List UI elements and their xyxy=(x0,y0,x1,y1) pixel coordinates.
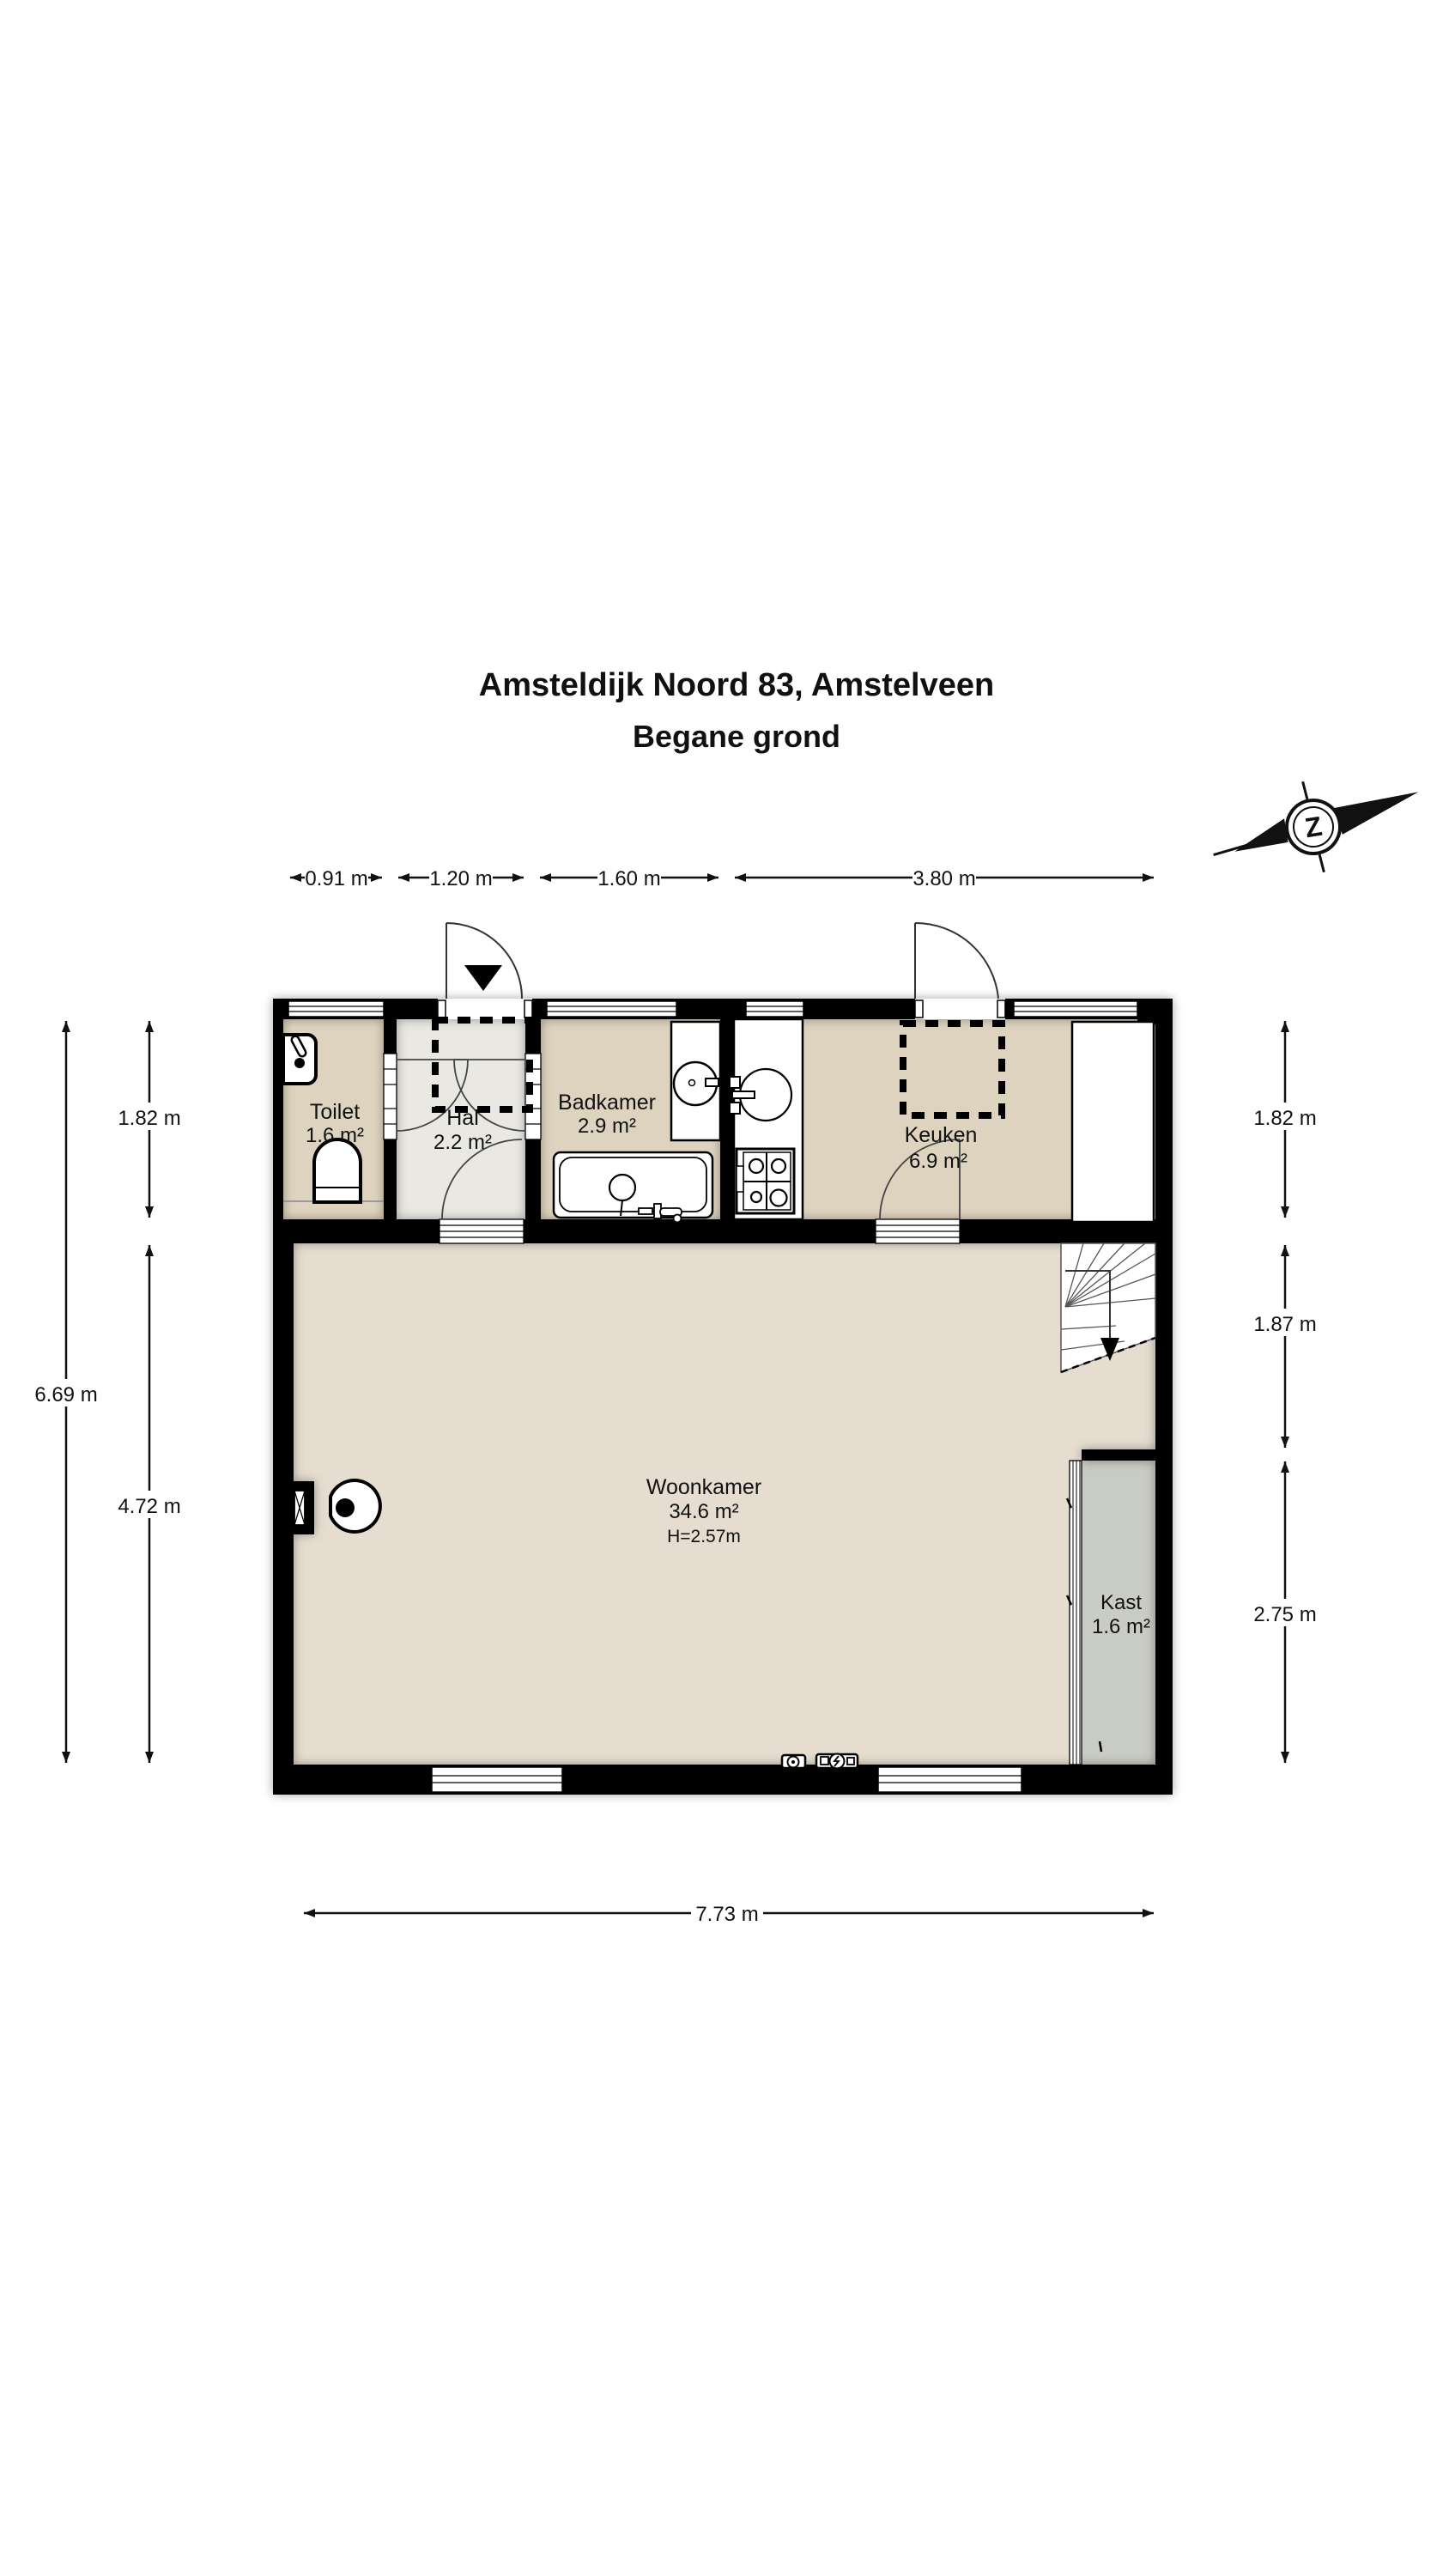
svg-text:1.20 m: 1.20 m xyxy=(429,867,492,890)
bathtub xyxy=(554,1152,712,1223)
chimney-flue xyxy=(294,1491,305,1525)
compass-north-icon: Z xyxy=(1204,764,1428,889)
label-hal: Hal xyxy=(446,1106,479,1130)
svg-text:1.60 m: 1.60 m xyxy=(597,867,660,890)
page-subtitle: Begane grond xyxy=(633,719,840,754)
boiler-icon xyxy=(782,1755,805,1768)
window-keuken-left xyxy=(746,1001,803,1017)
page-title: Amsteldijk Noord 83, Amstelveen xyxy=(479,667,994,703)
dim-left-upper: 1.82 m xyxy=(115,1021,184,1218)
label-woonkamer-height: H=2.57m xyxy=(667,1527,741,1546)
dim-right-middle: 1.87 m xyxy=(1251,1245,1319,1448)
dim-top-4: 3.80 m xyxy=(735,865,1154,890)
svg-text:6.69 m: 6.69 m xyxy=(34,1383,97,1406)
dim-top-2: 1.20 m xyxy=(398,865,524,890)
window-woonkamer-left xyxy=(432,1767,562,1792)
toilet-wc xyxy=(314,1139,361,1202)
dim-bottom-total: 7.73 m xyxy=(304,1900,1154,1926)
label-keuken: Keuken xyxy=(905,1123,978,1147)
label-woonkamer-area: 34.6 m² xyxy=(669,1500,738,1523)
window-woonkamer-right xyxy=(878,1767,1022,1792)
dim-left-lower: 4.72 m xyxy=(115,1245,184,1763)
wall-left-lower xyxy=(273,1243,294,1795)
wall-right xyxy=(1155,999,1173,1795)
entrance-door-keuken xyxy=(915,923,1005,1019)
floorplan-page: Amsteldijk Noord 83, Amstelveen Begane g… xyxy=(0,0,1449,2576)
svg-text:3.80 m: 3.80 m xyxy=(912,867,975,890)
window-toilet xyxy=(288,1001,384,1017)
wall-badkamer-keuken xyxy=(720,1019,733,1219)
wall-mid-horizontal xyxy=(273,1219,1173,1243)
kitchen-sink xyxy=(730,1069,791,1121)
svg-text:4.72 m: 4.72 m xyxy=(118,1495,180,1518)
label-kast: Kast xyxy=(1100,1591,1142,1614)
svg-text:7.73 m: 7.73 m xyxy=(695,1903,758,1926)
dim-right-upper: 1.82 m xyxy=(1251,1021,1319,1218)
dim-left-total: 6.69 m xyxy=(32,1021,100,1763)
entrance-arrow-icon xyxy=(464,965,502,991)
washbasin-counter xyxy=(671,1022,720,1140)
wood-stove xyxy=(330,1480,380,1532)
label-toilet: Toilet xyxy=(310,1100,360,1124)
svg-text:1.82 m: 1.82 m xyxy=(118,1107,180,1130)
wall-kast-stub xyxy=(1082,1449,1173,1461)
wall-bottom xyxy=(273,1765,1173,1795)
label-woonkamer: Woonkamer xyxy=(646,1475,761,1499)
label-badkamer: Badkamer xyxy=(558,1091,656,1115)
meter-icon xyxy=(816,1754,858,1769)
label-keuken-area: 6.9 m² xyxy=(909,1150,967,1173)
dim-top-1: 0.91 m xyxy=(290,865,382,890)
label-hal-area: 2.2 m² xyxy=(433,1131,492,1154)
window-badkamer xyxy=(547,1001,676,1017)
label-toilet-area: 1.6 m² xyxy=(306,1124,364,1147)
dim-top-3: 1.60 m xyxy=(540,865,718,890)
label-kast-area: 1.6 m² xyxy=(1092,1615,1150,1638)
svg-text:1.82 m: 1.82 m xyxy=(1253,1107,1316,1130)
dim-right-lower: 2.75 m xyxy=(1251,1461,1319,1763)
entrance-door-hal xyxy=(438,923,532,1019)
svg-text:1.87 m: 1.87 m xyxy=(1253,1313,1316,1336)
kitchen-counter-right xyxy=(1072,1022,1154,1222)
window-keuken-right xyxy=(1014,1001,1137,1017)
label-badkamer-area: 2.9 m² xyxy=(578,1115,636,1138)
floorplan-canvas: Amsteldijk Noord 83, Amstelveen Begane g… xyxy=(0,0,1449,2576)
toilet-sink xyxy=(283,1035,316,1084)
svg-text:0.91 m: 0.91 m xyxy=(305,867,367,890)
gas-hob xyxy=(737,1149,794,1213)
svg-text:2.75 m: 2.75 m xyxy=(1253,1603,1316,1626)
